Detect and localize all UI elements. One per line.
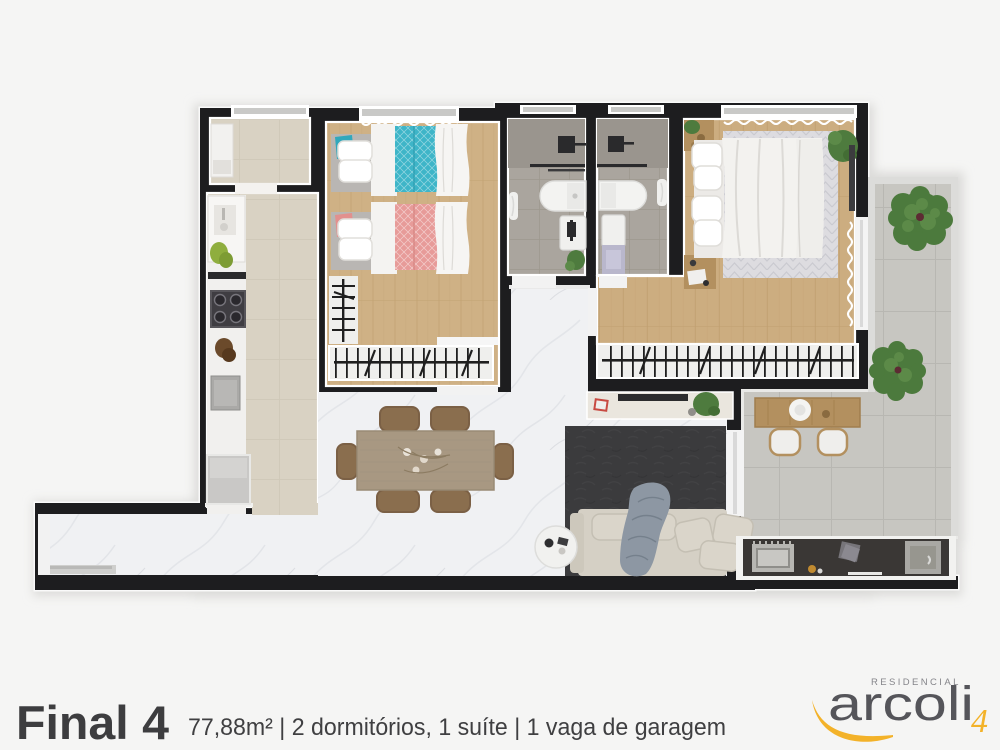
svg-text:Final 4: Final 4	[16, 696, 169, 749]
svg-text:77,88m² | 2 dormitórios, 1 suí: 77,88m² | 2 dormitórios, 1 suíte | 1 vag…	[188, 714, 726, 741]
svg-text:4: 4	[971, 703, 988, 740]
svg-text:arcoli: arcoli	[828, 678, 974, 731]
